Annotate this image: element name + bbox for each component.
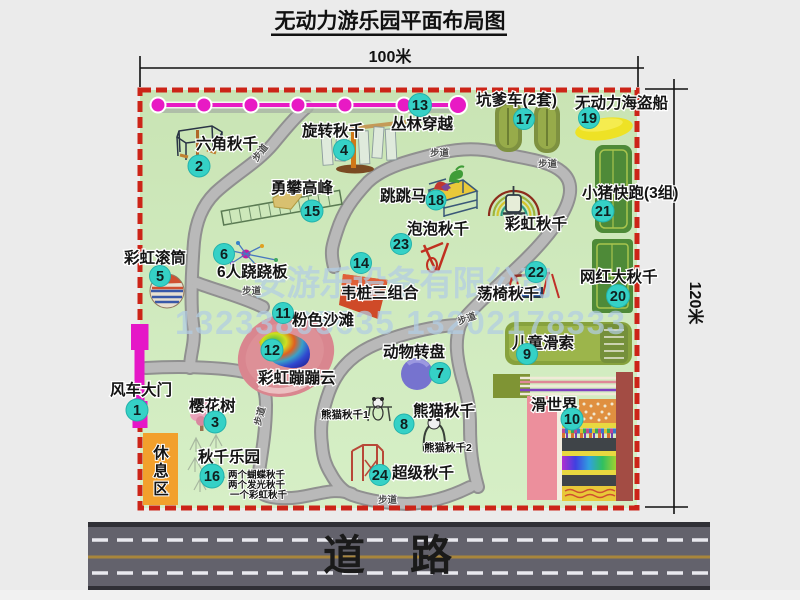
svg-text:休: 休 bbox=[152, 443, 169, 462]
svg-text:步道: 步道 bbox=[430, 147, 450, 159]
svg-text:7: 7 bbox=[436, 366, 444, 382]
svg-text:2: 2 bbox=[195, 159, 203, 175]
svg-text:风车大门: 风车大门 bbox=[110, 380, 172, 399]
svg-text:步道: 步道 bbox=[538, 158, 558, 170]
svg-text:路: 路 bbox=[410, 532, 453, 579]
svg-text:荡椅秋千: 荡椅秋千 bbox=[477, 284, 540, 303]
svg-text:道: 道 bbox=[323, 532, 365, 579]
svg-text:16: 16 bbox=[204, 469, 220, 485]
svg-text:彩虹秋千: 彩虹秋千 bbox=[504, 214, 568, 233]
svg-text:彩虹滚筒: 彩虹滚筒 bbox=[123, 248, 186, 267]
svg-text:丛林穿越: 丛林穿越 bbox=[391, 114, 454, 133]
svg-text:超级秋千: 超级秋千 bbox=[391, 463, 455, 482]
svg-text:18: 18 bbox=[428, 193, 444, 209]
svg-text:120米: 120米 bbox=[686, 282, 705, 326]
svg-text:熊猫秋千1: 熊猫秋千1 bbox=[321, 408, 369, 421]
svg-text:区: 区 bbox=[153, 480, 169, 498]
svg-text:勇攀高峰: 勇攀高峰 bbox=[271, 178, 334, 197]
svg-text:秋千乐园: 秋千乐园 bbox=[198, 447, 260, 466]
svg-text:小猪快跑(3组): 小猪快跑(3组) bbox=[582, 183, 678, 202]
svg-text:9: 9 bbox=[523, 347, 531, 363]
svg-text:六角秋千: 六角秋千 bbox=[196, 134, 259, 153]
svg-text:19: 19 bbox=[581, 111, 597, 127]
svg-text:一个彩虹秋千: 一个彩虹秋千 bbox=[230, 489, 288, 501]
svg-text:14: 14 bbox=[353, 256, 369, 272]
svg-text:11: 11 bbox=[275, 306, 290, 322]
svg-text:100米: 100米 bbox=[369, 47, 413, 66]
svg-text:步道: 步道 bbox=[378, 494, 398, 506]
svg-text:无动力游乐园平面布局图: 无动力游乐园平面布局图 bbox=[275, 9, 506, 33]
svg-text:息: 息 bbox=[153, 461, 169, 480]
svg-text:1: 1 bbox=[133, 403, 141, 419]
svg-text:21: 21 bbox=[595, 204, 611, 220]
svg-text:3: 3 bbox=[211, 415, 219, 431]
svg-text:泡泡秋千: 泡泡秋千 bbox=[407, 219, 470, 238]
svg-text:熊猫秋千: 熊猫秋千 bbox=[413, 401, 476, 420]
svg-text:4: 4 bbox=[340, 143, 348, 159]
svg-text:网红大秋千: 网红大秋千 bbox=[580, 267, 658, 286]
svg-text:22: 22 bbox=[528, 265, 544, 281]
svg-text:粉色沙滩: 粉色沙滩 bbox=[292, 310, 355, 329]
svg-text:步道: 步道 bbox=[242, 285, 262, 297]
svg-text:坑爹车(2套): 坑爹车(2套) bbox=[476, 90, 557, 109]
svg-text:20: 20 bbox=[610, 289, 626, 305]
svg-text:5: 5 bbox=[156, 269, 164, 285]
svg-text:23: 23 bbox=[393, 237, 409, 253]
svg-text:跳跳马: 跳跳马 bbox=[380, 186, 427, 205]
svg-text:13: 13 bbox=[412, 98, 428, 114]
svg-text:韦桩三组合: 韦桩三组合 bbox=[341, 283, 419, 302]
svg-text:24: 24 bbox=[372, 468, 388, 484]
svg-text:6人跷跷板: 6人跷跷板 bbox=[217, 262, 288, 281]
svg-text:动物转盘: 动物转盘 bbox=[383, 342, 446, 361]
svg-text:12: 12 bbox=[264, 343, 280, 359]
svg-text:10: 10 bbox=[564, 412, 580, 428]
svg-text:15: 15 bbox=[304, 204, 320, 220]
svg-text:旋转秋千: 旋转秋千 bbox=[301, 121, 365, 140]
svg-text:熊猫秋千2: 熊猫秋千2 bbox=[424, 441, 472, 454]
svg-text:6: 6 bbox=[220, 247, 228, 263]
svg-text:17: 17 bbox=[516, 112, 532, 128]
svg-text:8: 8 bbox=[400, 417, 408, 433]
svg-text:彩虹蹦蹦云: 彩虹蹦蹦云 bbox=[257, 368, 336, 387]
